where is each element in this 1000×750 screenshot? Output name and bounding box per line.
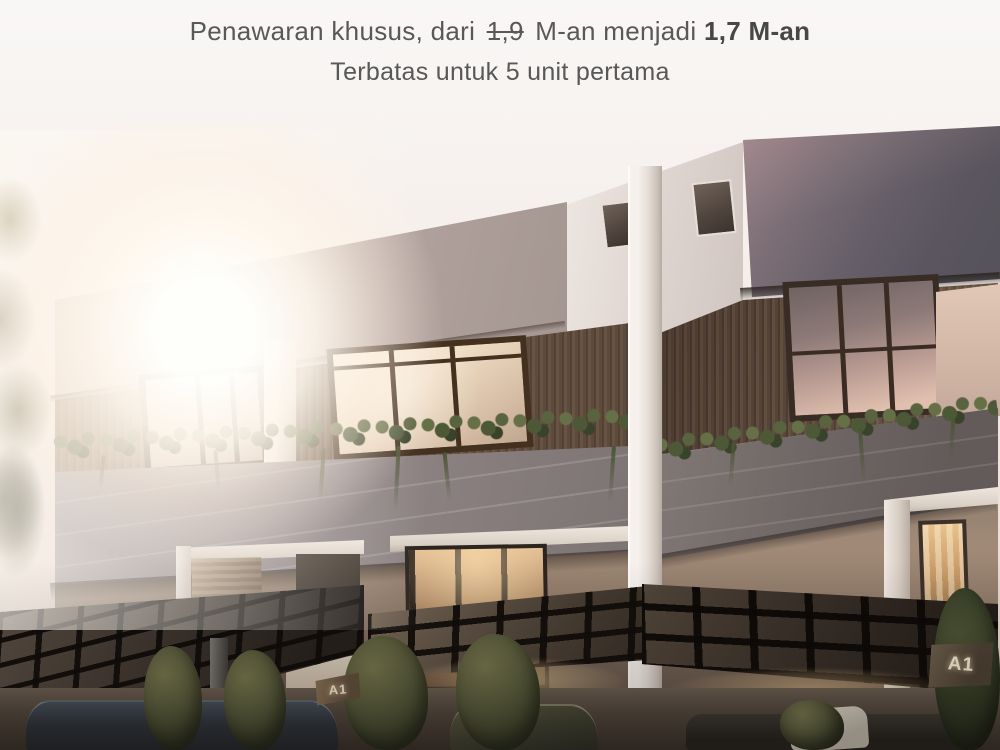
window-transom [334,354,522,371]
promo-old-price: 1,9 [483,16,528,46]
unit-plaque-right-label: A1 [947,653,975,677]
unit3-upper-window [782,274,945,422]
unit-plaque-left-label: A1 [328,681,348,697]
left-edge-lower-foliage [0,420,64,610]
shrub [780,700,844,750]
promo-subline: Terbatas untuk 5 unit pertama [0,58,1000,87]
promo-text-block: Penawaran khusus, dari 1,9 M-an menjadi … [0,16,1000,87]
unit-plaque-right: A1 [928,638,993,692]
promo-headline: Penawaran khusus, dari 1,9 M-an menjadi … [0,16,1000,47]
promo-mid: M-an menjadi [535,16,696,46]
real-estate-promo-image: A1 A1 Penawaran khusus, dari 1,9 M-an me… [0,0,1000,750]
middle-house-small-window-2 [691,179,736,237]
window-rail [792,344,936,356]
unit1-upper-window [139,366,270,474]
promo-prefix: Penawaran khusus, dari [190,16,476,46]
promo-new-price: 1,7 M-an [704,16,810,46]
